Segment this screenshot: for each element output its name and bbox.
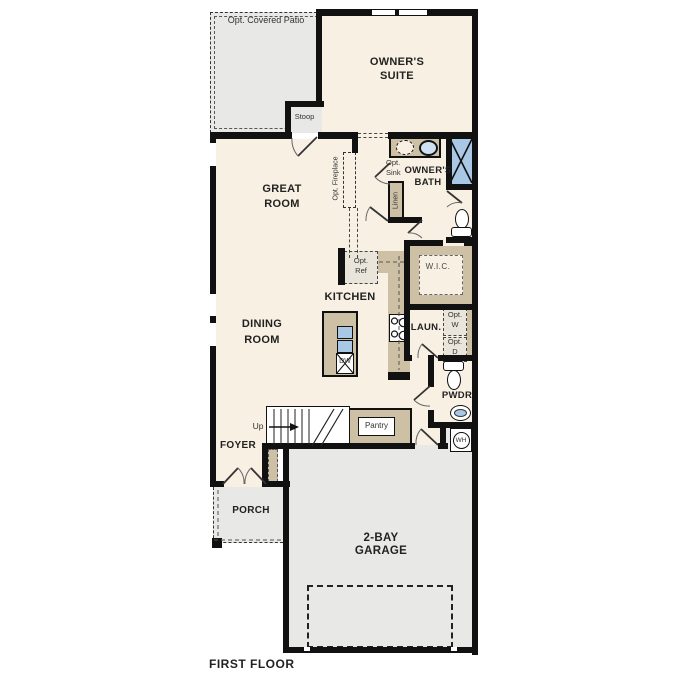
opt-sink-label-line2: Sink xyxy=(386,168,412,178)
opt-dryer-label: Opt. D xyxy=(443,337,467,356)
pwdr-label: PWDR xyxy=(437,390,477,401)
porch-label: PORCH xyxy=(226,505,276,516)
great-room-label: GREAT ROOM xyxy=(214,182,350,211)
owners-suite-label: OWNER'S SUITE xyxy=(332,56,462,83)
dining-room-label-line2: ROOM xyxy=(216,332,308,348)
pantry-label: Pantry xyxy=(358,421,395,430)
opt-washer-label-line1: Opt. xyxy=(443,310,467,320)
dining-room-label-line1: DINING xyxy=(216,316,308,332)
floor-plan: Opt. Covered Patio Stoop OWNER'S SUITE G… xyxy=(0,0,687,687)
opt-washer-label-line2: W xyxy=(443,320,467,330)
kitchen-label: KITCHEN xyxy=(318,291,382,303)
stoop-label: Stoop xyxy=(287,112,322,121)
wh-label: WH xyxy=(452,437,470,444)
opt-ref-label-line1: Opt. xyxy=(344,256,378,266)
garage-label-line1: 2-BAY xyxy=(320,532,442,545)
plan-strokes xyxy=(0,0,687,687)
dw-label: DW xyxy=(336,358,354,365)
up-label: Up xyxy=(249,421,267,431)
first-floor-title: FIRST FLOOR xyxy=(209,657,359,671)
owners-bath-label-line2: BATH xyxy=(392,177,464,189)
opt-sink-label-line1: Opt. xyxy=(386,158,412,168)
owners-suite-label-line1: OWNER'S xyxy=(332,56,462,70)
linen-label: Linen xyxy=(393,181,400,221)
great-room-label-line1: GREAT xyxy=(214,182,350,197)
garage-label: 2-BAY GARAGE xyxy=(320,532,442,558)
opt-fireplace-label: Opt. Fireplace xyxy=(333,149,340,209)
opt-ref-label-line2: Ref xyxy=(344,266,378,276)
opt-washer-label: Opt. W xyxy=(443,310,467,329)
foyer-label: FOYER xyxy=(215,440,261,451)
laundry-label: LAUN. xyxy=(406,322,446,333)
great-room-label-line2: ROOM xyxy=(214,197,350,212)
dining-room-label: DINING ROOM xyxy=(216,316,308,348)
opt-dryer-label-line2: D xyxy=(443,347,467,357)
owners-suite-label-line2: SUITE xyxy=(332,70,462,84)
opt-ref-label: Opt. Ref xyxy=(344,256,378,275)
opt-dryer-label-line1: Opt. xyxy=(443,337,467,347)
patio-label: Opt. Covered Patio xyxy=(210,15,322,25)
opt-sink-label: Opt. Sink xyxy=(386,158,412,177)
garage-label-line2: GARAGE xyxy=(320,545,442,558)
wic-label: W.I.C. xyxy=(412,262,464,271)
